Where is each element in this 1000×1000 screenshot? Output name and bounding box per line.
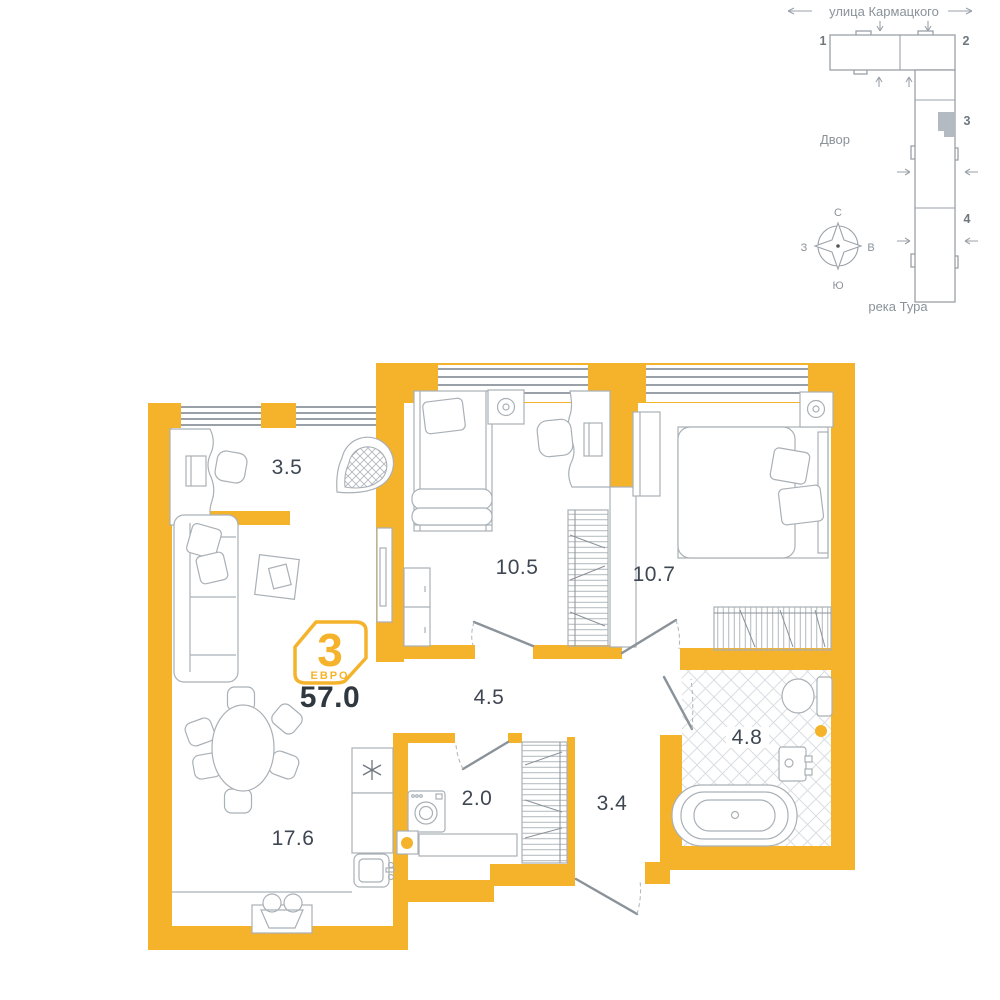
bedroom-2-furniture [633,392,833,558]
blanket [678,427,795,558]
desk-chair [214,450,249,485]
dining-table-top [212,705,274,791]
double-bed [678,427,828,558]
area-label-loggia: 3.5 [272,456,303,479]
pillow [778,485,824,526]
area-label-corridor: 3.4 [597,792,628,815]
vent-valve-icon [800,392,833,427]
dining-table [183,687,305,813]
monitor [186,456,206,486]
stove [252,894,312,933]
compass-rose-icon: С В Ю З [801,207,875,292]
coffee-table [255,555,300,600]
dining-chair [225,789,252,813]
floorplan-page: улица Кармацкого 1 2 3 [0,0,1000,1000]
utility-riser [397,831,418,854]
building-block-3-4 [911,70,958,302]
compass-east-label: В [867,242,874,254]
area-label-kitchen-living: 17.6 [272,827,315,850]
window-loggia-2 [296,403,376,428]
water-riser-dot [815,725,827,737]
dresser-bedroom-1 [404,568,430,646]
tv-unit-living [377,528,392,622]
courtyard-label: Двор [820,132,850,147]
pillow [422,398,466,435]
river-label: река Тура [868,299,928,314]
area-label-bathroom: 4.8 [732,726,763,749]
total-area-label: 57.0 [300,681,360,714]
washing-machine [408,791,445,832]
door-bedroom-1 [472,622,533,646]
floor-plan: 3.5 10.5 10.7 4.5 2.0 3.4 4.8 17.6 3 ЕВР… [148,363,855,950]
area-label-laundry: 2.0 [462,787,493,810]
area-label-bedroom-2: 10.7 [633,563,676,586]
sofa [174,515,238,682]
door-laundry [456,742,508,769]
building-block-1-2 [830,31,955,74]
badge-rooms-number: 3 [317,624,343,676]
window-bedroom-2 [646,365,808,402]
blanket [412,508,492,525]
single-bed [412,391,492,531]
building-number-2: 2 [963,34,970,48]
building-number-3: 3 [964,114,971,128]
bathtub [672,785,797,846]
floorplan-canvas: улица Кармацкого 1 2 3 [0,0,1000,1000]
monitor [584,423,602,456]
laundry-furniture [397,791,517,856]
compass-south-label: Ю [832,280,843,292]
kitchen-counter [352,793,393,853]
apartment-type-badge: 3 ЕВРО [295,622,366,683]
site-plan: улица Кармацкого 1 2 3 [788,4,978,314]
tv-unit-bedroom-2 [633,412,660,496]
desk-chair [536,418,574,457]
area-label-hallway: 4.5 [474,686,505,709]
kitchen-sink [354,854,394,887]
street-label: улица Кармацкого [829,4,939,19]
blanket [412,489,492,509]
vent-valve-icon [488,390,524,424]
hallway-closet [522,742,567,863]
street-arrow-right-icon [948,8,972,14]
desk-bedroom-1 [536,391,610,487]
compass-north-label: С [834,207,842,219]
street-arrow-left-icon [788,8,812,14]
laundry-counter [419,834,517,856]
compass-west-label: З [801,242,808,254]
building-number-4: 4 [964,212,971,226]
wardrobe-bedroom-1 [568,510,608,646]
area-label-bedroom-1: 10.5 [496,556,539,579]
building-number-1: 1 [820,34,827,48]
door-entrance [576,879,641,914]
window-loggia-1 [181,403,261,428]
wardrobe-bedroom-2 [714,607,831,650]
pillow [769,447,810,485]
toilet [782,677,832,716]
